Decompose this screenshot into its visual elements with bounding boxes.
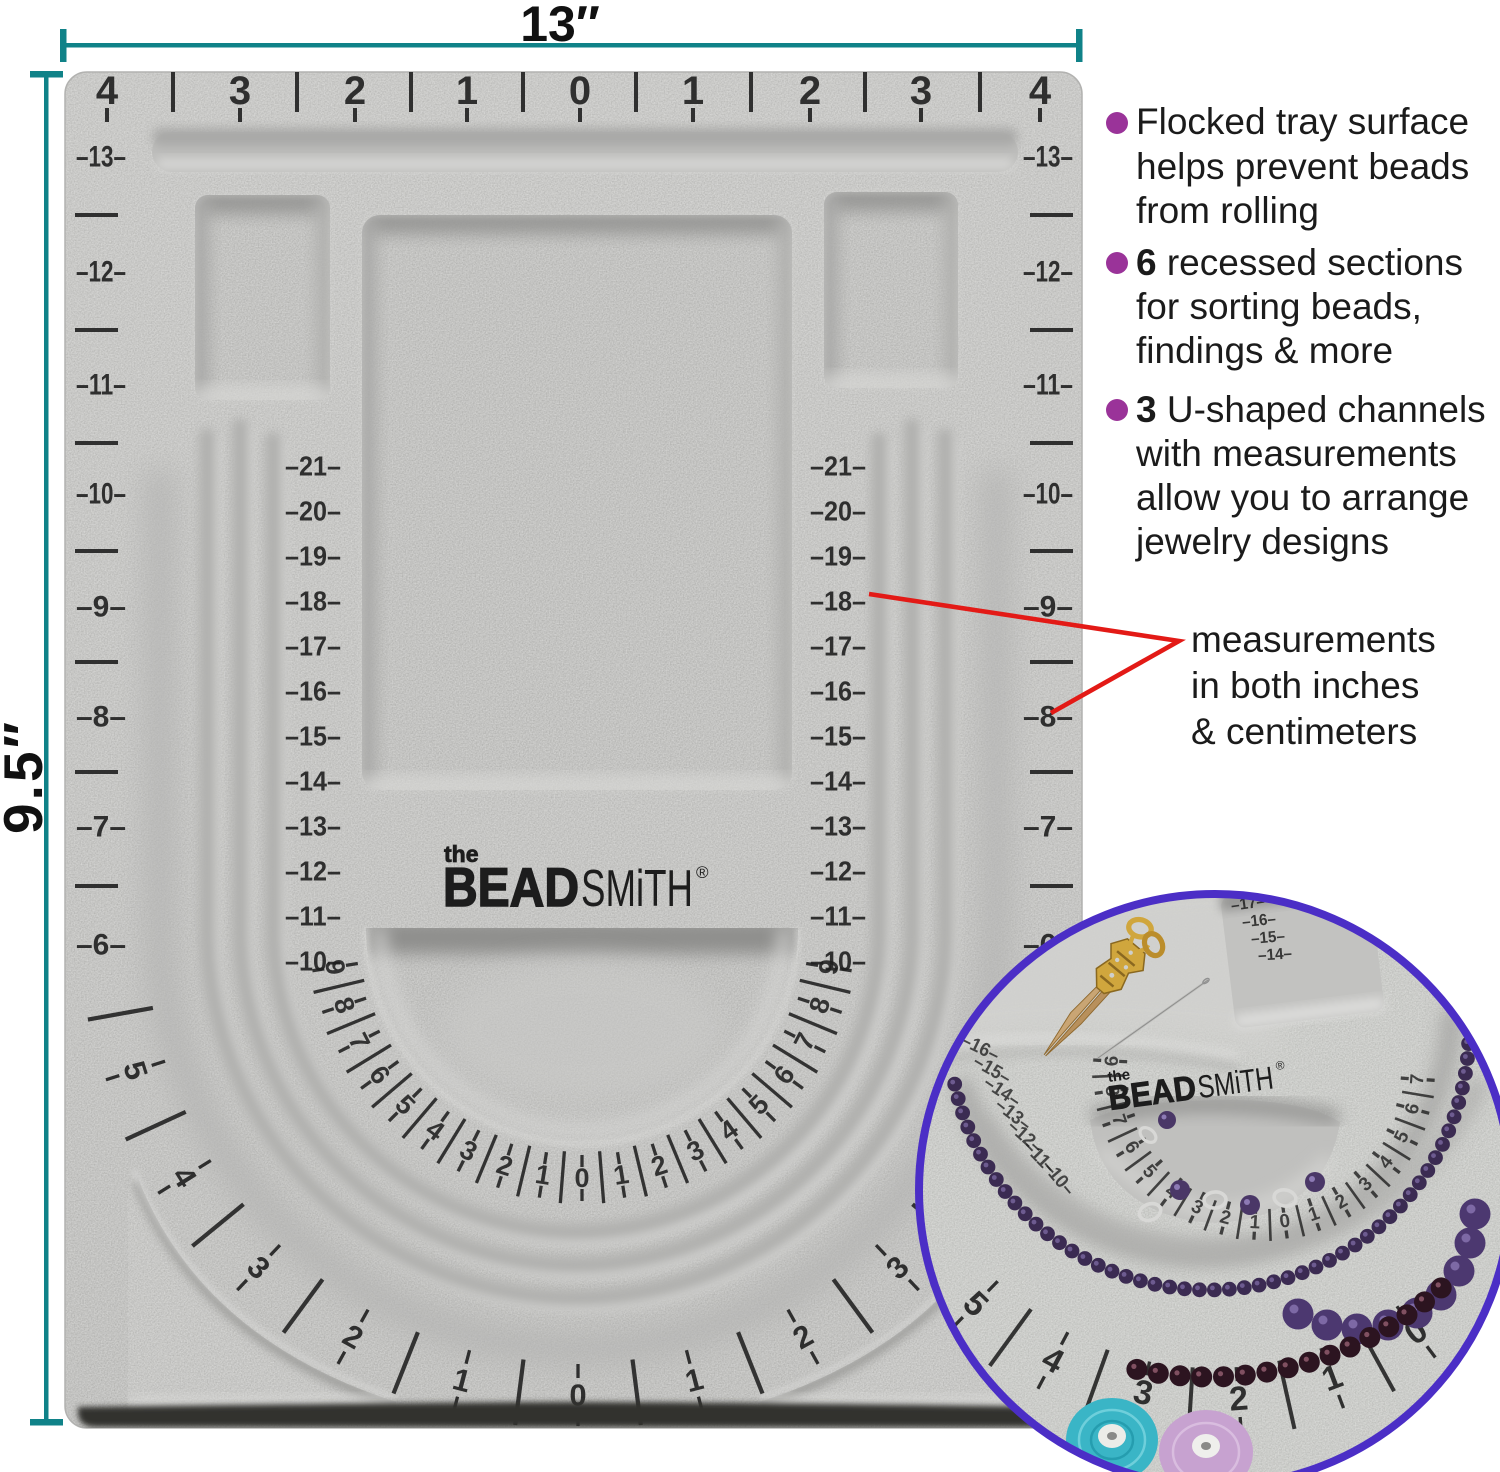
svg-text:7: 7 xyxy=(1407,1073,1429,1085)
svg-text:–6–: –6– xyxy=(76,929,126,962)
svg-text:3: 3 xyxy=(229,69,251,113)
svg-text:in both inches: in both inches xyxy=(1191,665,1419,706)
svg-text:3 U-shaped channels: 3 U-shaped channels xyxy=(1136,389,1486,430)
svg-text:®: ® xyxy=(696,863,709,882)
svg-text:–15–: –15– xyxy=(1250,928,1285,948)
svg-text:–13–: –13– xyxy=(1023,141,1073,174)
svg-text:–9–: –9– xyxy=(76,591,126,624)
svg-text:–17–: –17– xyxy=(810,631,866,662)
svg-text:–13–: –13– xyxy=(76,141,126,174)
svg-text:measurements: measurements xyxy=(1191,619,1436,660)
svg-text:–11–: –11– xyxy=(76,369,126,402)
svg-text:–11–: –11– xyxy=(285,901,341,932)
svg-text:SMiTH: SMiTH xyxy=(581,860,693,918)
svg-text:–14–: –14– xyxy=(285,766,341,797)
svg-text:13″: 13″ xyxy=(520,0,600,52)
svg-text:–16–: –16– xyxy=(285,676,341,707)
svg-text:–11–: –11– xyxy=(1023,369,1073,402)
svg-text:–7–: –7– xyxy=(1023,811,1073,844)
svg-text:–12–: –12– xyxy=(76,256,126,289)
svg-text:2: 2 xyxy=(799,69,821,113)
svg-text:–19–: –19– xyxy=(285,541,341,572)
svg-text:–10–: –10– xyxy=(76,478,126,511)
svg-text:with measurements: with measurements xyxy=(1135,433,1457,474)
svg-text:1: 1 xyxy=(682,69,704,113)
svg-text:4: 4 xyxy=(96,69,119,113)
svg-text:0: 0 xyxy=(574,1163,589,1193)
svg-text:–7–: –7– xyxy=(76,811,126,844)
svg-text:–15–: –15– xyxy=(285,721,341,752)
svg-text:3: 3 xyxy=(910,69,932,113)
svg-text:–16–: –16– xyxy=(1241,911,1277,931)
svg-text:1: 1 xyxy=(1249,1212,1261,1234)
svg-text:from rolling: from rolling xyxy=(1136,190,1319,231)
svg-text:helps prevent beads: helps prevent beads xyxy=(1136,146,1469,187)
svg-text:–21–: –21– xyxy=(285,451,341,482)
svg-text:for sorting beads,: for sorting beads, xyxy=(1136,286,1422,327)
svg-text:findings & more: findings & more xyxy=(1136,330,1393,371)
svg-text:–18–: –18– xyxy=(810,586,866,617)
svg-text:–16–: –16– xyxy=(810,676,866,707)
svg-text:Flocked tray surface: Flocked tray surface xyxy=(1136,101,1469,142)
svg-text:allow you to arrange: allow you to arrange xyxy=(1136,477,1469,518)
svg-text:–15–: –15– xyxy=(810,721,866,752)
svg-text:& centimeters: & centimeters xyxy=(1191,711,1417,752)
svg-text:–17–: –17– xyxy=(285,631,341,662)
svg-text:–12–: –12– xyxy=(1023,256,1073,289)
svg-text:–12–: –12– xyxy=(810,856,866,887)
svg-text:2: 2 xyxy=(344,69,366,113)
svg-text:9: 9 xyxy=(1099,1055,1121,1067)
svg-text:BEAD: BEAD xyxy=(443,856,579,918)
svg-text:4: 4 xyxy=(1029,69,1052,113)
svg-text:0: 0 xyxy=(569,69,591,113)
svg-text:–13–: –13– xyxy=(285,811,341,842)
svg-text:9.5″: 9.5″ xyxy=(0,722,54,834)
svg-text:–13–: –13– xyxy=(810,811,866,842)
svg-text:6 recessed sections: 6 recessed sections xyxy=(1136,242,1463,283)
svg-text:–18–: –18– xyxy=(285,586,341,617)
svg-text:–10–: –10– xyxy=(1023,478,1073,511)
svg-text:1: 1 xyxy=(456,69,478,113)
svg-text:jewelry designs: jewelry designs xyxy=(1135,521,1389,562)
svg-text:–20–: –20– xyxy=(285,496,341,527)
svg-text:–12–: –12– xyxy=(285,856,341,887)
svg-text:–20–: –20– xyxy=(810,496,866,527)
svg-text:–14–: –14– xyxy=(810,766,866,797)
svg-text:–19–: –19– xyxy=(810,541,866,572)
svg-text:–21–: –21– xyxy=(810,451,866,482)
svg-text:–11–: –11– xyxy=(810,901,866,932)
svg-text:–14–: –14– xyxy=(1257,945,1292,964)
svg-text:–8–: –8– xyxy=(76,701,126,734)
